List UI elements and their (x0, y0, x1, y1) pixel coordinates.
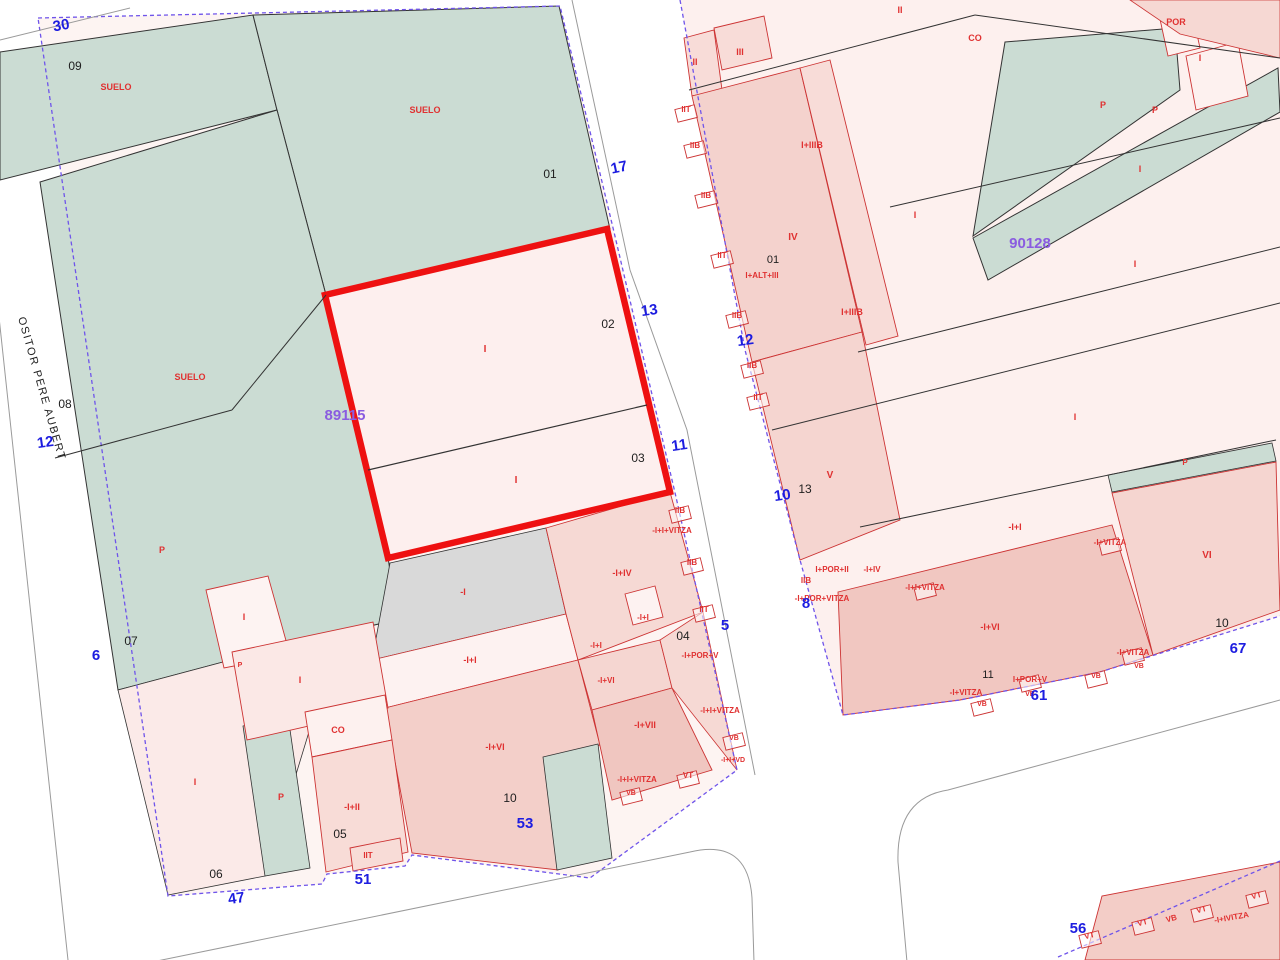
label-i-22: I (299, 675, 302, 685)
label-08-11: 08 (58, 397, 72, 411)
label-67-104: 67 (1230, 640, 1247, 657)
label-vt-45: VT (683, 771, 693, 780)
label-iii-43: -I+II (344, 802, 360, 812)
label-iporv-31: -I+POR+V (682, 651, 720, 660)
label-04-30: 04 (676, 629, 690, 643)
label-p-16: P (159, 545, 165, 555)
label-iit-62: IIT (681, 105, 690, 114)
label-co-57: CO (968, 33, 982, 43)
label-61-100: 61 (1031, 687, 1048, 704)
label-90128-69: 90128 (1009, 235, 1051, 252)
label-iv-68: IV (788, 232, 798, 243)
label-ivitza-101: -I+VITZA (1117, 648, 1150, 657)
label-v-80: V (827, 470, 834, 481)
label-vb-46: VB (626, 790, 636, 797)
label-11-15: 11 (670, 436, 688, 455)
label-iii-55: III (736, 47, 744, 57)
label-p-41: P (278, 792, 284, 802)
label-iiv-88: -I+IV (863, 565, 881, 574)
label-vb-99: VB (977, 701, 987, 708)
label-ivitza-97: -I+VITZA (950, 688, 983, 697)
label-iib-25: IIB (675, 506, 685, 515)
label-i-67: I (914, 210, 917, 220)
label-p-61: P (1152, 105, 1158, 115)
label-iit-78: IIT (753, 393, 762, 402)
label-13-81: 13 (798, 482, 812, 496)
label-03-13: 03 (631, 451, 645, 465)
label-17-5: 17 (609, 158, 629, 178)
label-5-29: 5 (721, 617, 729, 634)
label-suelo-10: SUELO (174, 372, 205, 382)
label-iit-50: IIT (363, 851, 372, 860)
label-ivi-42: -I+VI (485, 742, 504, 752)
label-ivi-93: -I+VI (980, 622, 999, 632)
label-iivitza-26: -I+I+VITZA (652, 526, 692, 535)
label-iit-28: IIT (699, 605, 708, 614)
label-suelo-3: SUELO (409, 105, 440, 115)
label-iiiib-74: I+IIIB (841, 307, 863, 317)
label-12-76: 12 (736, 331, 755, 350)
label-i-79: I (1074, 412, 1077, 422)
label-i-65: I (1139, 164, 1142, 174)
label-por-58: POR (1166, 17, 1186, 27)
label-06-51: 06 (209, 867, 223, 881)
label-07-17: 07 (124, 634, 138, 648)
label-iib-63: IIB (690, 141, 700, 150)
label-02-6: 02 (601, 317, 615, 331)
label-ivitza-85: -I+VITZA (1094, 538, 1127, 547)
label-iiv-23: -I+IV (612, 568, 631, 578)
label-ii-54: II (692, 57, 697, 67)
label-8-92: 8 (802, 595, 810, 612)
label-ii-24: -I+I (637, 613, 649, 622)
label-05-49: 05 (333, 827, 347, 841)
label-ii-33: -I+I (463, 655, 476, 665)
label-i-14: I (515, 475, 518, 486)
label-vi-86: VI (1202, 550, 1212, 561)
label-iib-90: IIB (801, 576, 811, 585)
label-i-40: I (194, 777, 197, 787)
bottom-right-strip-block[interactable] (1085, 862, 1280, 960)
label-p-60: P (1100, 100, 1106, 110)
label-iib-75: IIB (732, 311, 742, 320)
label-i-73: I (1134, 259, 1137, 269)
label-ialtiii-72: I+ALT+III (745, 271, 778, 280)
label-01-4: 01 (543, 167, 557, 181)
label-iivd-39: -I+I+VD (721, 757, 745, 764)
label-iib-66: IIB (701, 191, 711, 200)
label-p-21: P (238, 662, 243, 669)
label-p-83: P (1182, 458, 1188, 467)
label-51-52: 51 (355, 871, 372, 888)
label-iivitza-44: -I+I+VITZA (617, 775, 657, 784)
label-i-7: I (484, 344, 487, 355)
label-6-18: 6 (92, 647, 100, 664)
label-13-8: 13 (640, 301, 659, 320)
label-i-19: I (243, 612, 246, 622)
label-89115-9: 89115 (325, 407, 366, 424)
label-iivitza-89: -I+I+VITZA (905, 583, 945, 592)
label-30-0: 30 (52, 16, 71, 36)
label-iporv-96: I+POR+V (1013, 675, 1048, 684)
cadastral-map[interactable]: 3009SUELOSUELO011702I1389115SUELO081203I… (0, 0, 1280, 960)
label-vb-102: VB (1134, 663, 1144, 670)
label-11-95: 11 (982, 669, 993, 681)
label-10-82: 10 (773, 486, 792, 505)
label-ivi-34: -I+VI (597, 676, 614, 685)
cadastral-map-viewport[interactable]: 3009SUELOSUELO011702I1389115SUELO081203I… (0, 0, 1280, 960)
label-47-53: 47 (227, 889, 246, 908)
label-09-1: 09 (68, 59, 82, 73)
label-i-59: I (1199, 53, 1202, 63)
label-ii-32: -I+I (590, 641, 602, 650)
label-vb-103: VB (1091, 673, 1101, 680)
label-10-94: 10 (1215, 616, 1229, 630)
label-i-20: -I (460, 587, 466, 597)
label-iib-77: IIB (747, 361, 757, 370)
label-iit-70: IIT (717, 251, 726, 260)
label-vb-38: VB (729, 735, 739, 742)
label-ivii-36: -I+VII (634, 720, 656, 730)
label-suelo-2: SUELO (100, 82, 131, 92)
label-co-35: CO (331, 725, 345, 735)
label-iib-27: IIB (687, 558, 697, 567)
label-10-47: 10 (503, 791, 517, 805)
label-01-71: 01 (767, 254, 779, 266)
label-53-48: 53 (517, 815, 534, 832)
label-ii-84: -I+I (1008, 522, 1021, 532)
label-iiiib-64: I+IIIB (801, 140, 823, 150)
label-iivitza-37: -I+I+VITZA (700, 706, 740, 715)
label-iporii-87: I+POR+II (815, 565, 848, 574)
label-ii-56: II (897, 5, 902, 15)
